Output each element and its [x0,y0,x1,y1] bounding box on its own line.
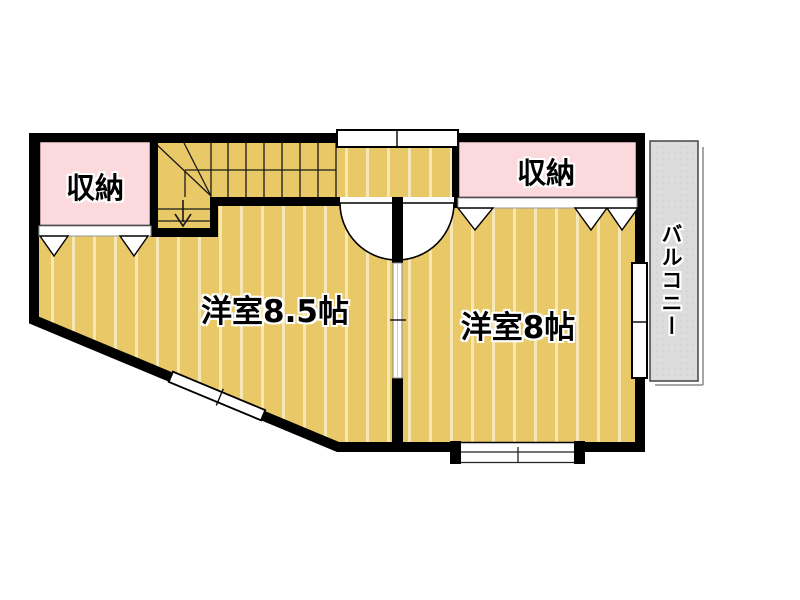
room-divider-wall [392,378,403,452]
closet-right-label: 収納 [490,150,602,192]
top-window [337,130,458,147]
room-8-label: 洋室8帖 [442,302,594,347]
wall-below-stairs [150,228,218,237]
hall-wall [210,197,340,206]
room-divider-post [392,197,403,263]
bottom-bay-window [450,441,585,464]
floor-plan: 洋室8.5帖 洋室8帖 収納 収納 バルコニー [0,0,800,600]
balcony-label: バルコニー [656,200,686,360]
room-85-label: 洋室8.5帖 [195,286,355,331]
balcony-door-window [632,263,647,378]
closet-left-label: 収納 [40,165,150,207]
